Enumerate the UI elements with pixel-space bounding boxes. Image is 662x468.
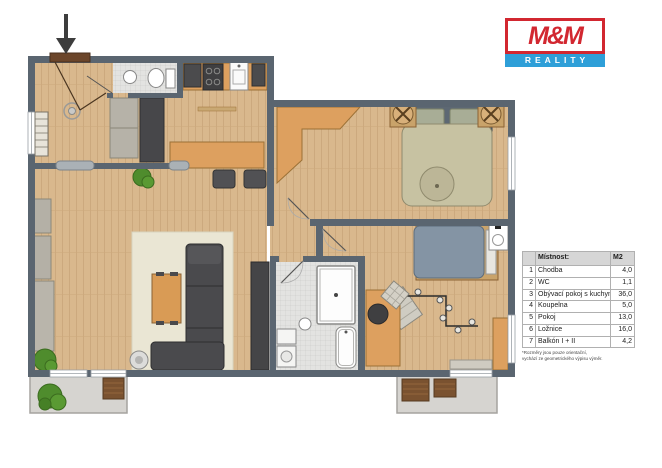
ceiling-lamp-center [69,108,76,115]
bathroom-sink-icon [299,318,311,330]
sideboard [34,199,51,233]
room-number: 1 [523,266,536,278]
room-sink-icon [489,224,508,250]
room-number: 2 [523,277,536,289]
room-name: Pokoj [536,313,611,325]
room-number: 6 [523,324,536,336]
bathtub-icon [336,327,356,368]
balcony-table [103,378,124,399]
legend-row: 5 Pokoj 13,0 [523,313,635,325]
window [508,137,515,190]
legend-row: 7 Balkón I + II 4,2 [523,336,635,348]
low-cabinet [493,318,508,370]
balcony-side-table [434,379,456,397]
room-name: Obývací pokoj s kuchyní [536,289,611,301]
sliding-door [169,161,189,170]
legend-header-row: Místnost: M2 [523,252,635,266]
window [508,315,515,363]
tall-cabinet [251,262,269,370]
kitchen-cabinet [184,64,201,87]
kitchen-sink-icon [230,61,248,90]
office-chair [368,304,388,324]
legend-row: 4 Koupelna 5,0 [523,301,635,313]
fridge [252,64,265,86]
logo-reality-text: REALITY [521,56,589,65]
floorplan-page: M&M REALITY Místnost: M2 1 Chodba 4,0 [0,0,662,468]
room-number: 5 [523,313,536,325]
room-area: 1,1 [611,277,635,289]
room-name: Chodba [536,266,611,278]
coffee-table [152,272,181,325]
wardrobe-gray [110,98,138,158]
room-legend-table: Místnost: M2 1 Chodba 4,0 2 WC 1,1 3 Obý… [522,251,635,348]
sideboard [34,236,51,279]
legend-header-area: M2 [611,252,635,266]
shower-icon [317,266,355,324]
wc-sink-icon [124,71,137,84]
room-name: Balkón I + II [536,336,611,348]
room-area: 13,0 [611,313,635,325]
legend-row: 2 WC 1,1 [523,277,635,289]
stove-icon [203,64,223,90]
cabinet [34,281,54,351]
balcony-door [91,370,126,377]
chair [213,170,235,188]
plant [34,349,57,372]
room-number: 7 [523,336,536,348]
wardrobe-dark [140,98,164,162]
chair [244,170,266,188]
legend-row: 3 Obývací pokoj s kuchyní 36,0 [523,289,635,301]
legend-row: 6 Ložnice 16,0 [523,324,635,336]
room-area: 5,0 [611,301,635,313]
room-area: 16,0 [611,324,635,336]
footnote-line-2: vychází ze geometrického výpisu výměr. [522,356,628,362]
room-area: 36,0 [611,289,635,301]
shelf [198,107,236,111]
balcony-two [397,374,497,413]
toilet-tank [166,69,175,88]
window [50,370,87,377]
single-bed [414,224,498,280]
room-name: Koupelna [536,301,611,313]
logo-mm-text: M&M [528,24,582,49]
legend-header-room: Místnost: [536,252,611,266]
entrance-door [50,53,90,62]
sliding-door [56,161,94,170]
floor-lamp [130,351,148,369]
logo-mm-box: M&M [505,18,605,54]
room-area: 4,2 [611,336,635,348]
room-number: 3 [523,289,536,301]
entrance-arrow-icon [56,14,76,54]
washing-machine-icon [277,329,296,367]
balcony-bench [402,379,429,401]
room-name: Ložnice [536,324,611,336]
balcony-door [450,370,492,377]
room-name: WC [536,277,611,289]
floor-plan [0,0,662,468]
legend-row: 1 Chodba 4,0 [523,266,635,278]
legend-footnote: *Rozměry jsou pouze orientační, vychází … [522,350,628,362]
window [28,112,35,154]
room-number: 4 [523,301,536,313]
room-area: 4,0 [611,266,635,278]
radiator [35,112,48,156]
toilet-icon [148,69,164,88]
balcony-one [30,374,127,413]
window-sill [450,360,492,369]
room-legend: Místnost: M2 1 Chodba 4,0 2 WC 1,1 3 Obý… [522,251,628,362]
agency-logo: M&M REALITY [505,18,605,67]
legend-header-num [523,252,536,266]
logo-reality-bar: REALITY [505,54,605,67]
